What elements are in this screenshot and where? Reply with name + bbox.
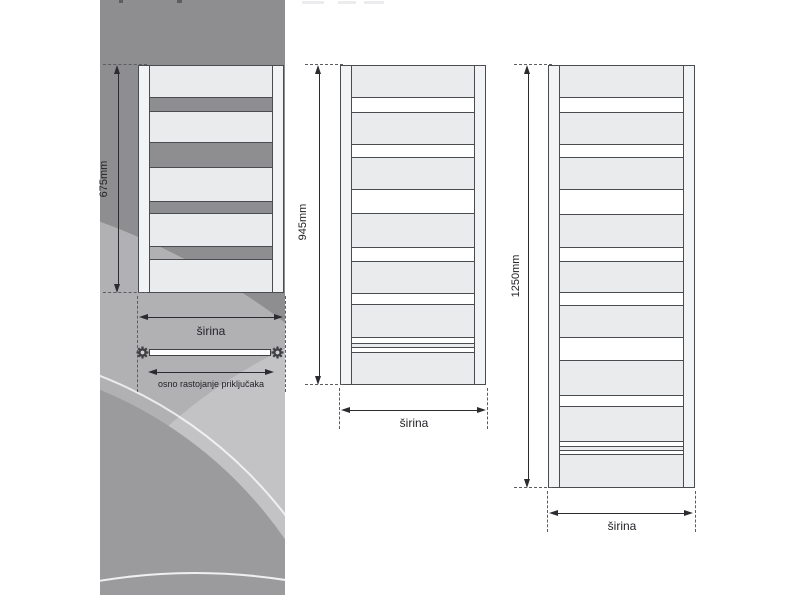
extension-dash [514, 487, 552, 488]
radiator-slat [559, 454, 684, 488]
dimension-line [319, 71, 320, 379]
valve-icon [136, 346, 149, 364]
arrow-left-icon [341, 407, 350, 413]
cropped-text-artifact [177, 0, 182, 3]
extension-dash [103, 64, 147, 65]
width-dimension-label: širina [197, 324, 226, 338]
radiator-slat [351, 112, 475, 145]
extension-dash [285, 296, 286, 392]
extension-dash [305, 384, 343, 385]
radiator-slat [559, 157, 684, 190]
radiator-thin-slat [351, 343, 475, 348]
radiator-slat [351, 157, 475, 190]
dimension-line [118, 71, 119, 287]
radiator-slat [559, 214, 684, 248]
radiator-slat [351, 304, 475, 338]
radiator-body-small [138, 65, 284, 293]
arrow-left-icon [148, 369, 157, 375]
radiator-slat [559, 360, 684, 396]
arrow-left-icon [549, 510, 558, 516]
radiator-rail-right [272, 65, 284, 293]
extension-dash [103, 292, 147, 293]
dimension-line [347, 410, 480, 411]
arrow-right-icon [274, 314, 283, 320]
arrow-up-icon [524, 65, 530, 74]
radiator-slat [559, 112, 684, 145]
height-dimension-label: 945mm [297, 204, 309, 241]
radiator-slat [149, 111, 273, 143]
radiator-body-large [548, 65, 695, 488]
connection-pipe [149, 349, 271, 356]
cropped-text-artifact [302, 1, 324, 4]
radiator-slat [559, 406, 684, 442]
cropped-text-artifact [364, 1, 384, 4]
extension-dash [339, 388, 340, 429]
radiator-slat [351, 213, 475, 248]
width-dimension-label: širina [608, 519, 637, 533]
valve-icon [271, 346, 284, 364]
arrow-up-icon [114, 65, 120, 74]
radiator-slat [149, 213, 273, 247]
radiator-slat [149, 167, 273, 202]
dimension-line [528, 71, 529, 482]
radiator-rail-right [683, 65, 695, 488]
decor-arc-line [100, 572, 285, 595]
height-dimension-label: 675mm [98, 161, 110, 198]
arrow-right-icon [684, 510, 693, 516]
extension-dash [514, 64, 552, 65]
radiator-slat [351, 352, 475, 385]
cropped-text-artifact [338, 1, 356, 4]
radiator-body-medium [340, 65, 486, 385]
cropped-text-artifact [119, 0, 123, 3]
dimension-line [555, 513, 687, 514]
arrow-right-icon [477, 407, 486, 413]
radiator-thin-slat [559, 446, 684, 451]
radiator-slat [351, 261, 475, 294]
radiator-slat [559, 65, 684, 98]
extension-dash [487, 388, 488, 429]
arrow-right-icon [265, 369, 274, 375]
extension-dash [547, 491, 548, 532]
height-dimension-label: 1250mm [510, 255, 522, 298]
connection-distance-label: osno rastojanje priključaka [158, 379, 264, 389]
width-dimension-label: širina [400, 416, 429, 430]
extension-dash [137, 296, 138, 392]
radiator-slat [149, 65, 273, 98]
radiator-rail-right [474, 65, 486, 385]
diagram-stage: 675mm širina osno rastojanje priključaka… [0, 0, 800, 600]
radiator-slat [559, 305, 684, 338]
extension-dash [305, 64, 343, 65]
radiator-slat [351, 65, 475, 98]
dimension-line [145, 317, 277, 318]
dimension-line [154, 372, 268, 373]
arrow-left-icon [139, 314, 148, 320]
radiator-slat [559, 261, 684, 293]
radiator-slat [149, 259, 273, 293]
extension-dash [695, 491, 696, 532]
arrow-up-icon [315, 65, 321, 74]
